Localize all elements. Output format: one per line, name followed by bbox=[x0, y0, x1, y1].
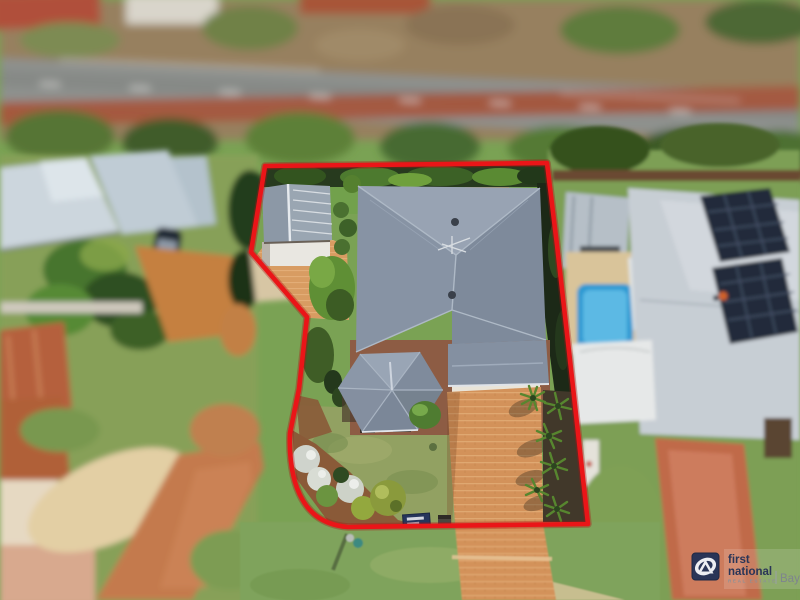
watermark-brand-line2: national bbox=[728, 566, 772, 578]
front-bush bbox=[409, 401, 441, 429]
pole-lamp-head bbox=[353, 538, 363, 548]
olive-bush bbox=[370, 480, 406, 516]
first-national-logo-icon bbox=[692, 553, 719, 580]
pergola bbox=[764, 418, 792, 458]
front-verge bbox=[240, 522, 660, 600]
watermark-brand-line1: first bbox=[728, 554, 750, 566]
roof-vent bbox=[448, 291, 456, 299]
light-pole bbox=[346, 534, 354, 542]
aerial-photo: first national REAL ESTATE Bay bbox=[0, 0, 800, 600]
watermark-tagline: REAL ESTATE bbox=[728, 579, 777, 584]
person-on-roof bbox=[719, 292, 728, 301]
green-bush bbox=[316, 485, 338, 507]
roof-vent bbox=[451, 218, 459, 226]
neighbour-white-roof bbox=[126, 0, 218, 24]
right-lower-roof bbox=[572, 340, 656, 424]
left-white-fence bbox=[0, 302, 142, 313]
shed bbox=[262, 184, 332, 266]
aerial-photo-canvas: first national REAL ESTATE Bay bbox=[0, 0, 800, 600]
driveway-crossover bbox=[455, 524, 556, 600]
watermark-region: Bay bbox=[780, 573, 800, 585]
